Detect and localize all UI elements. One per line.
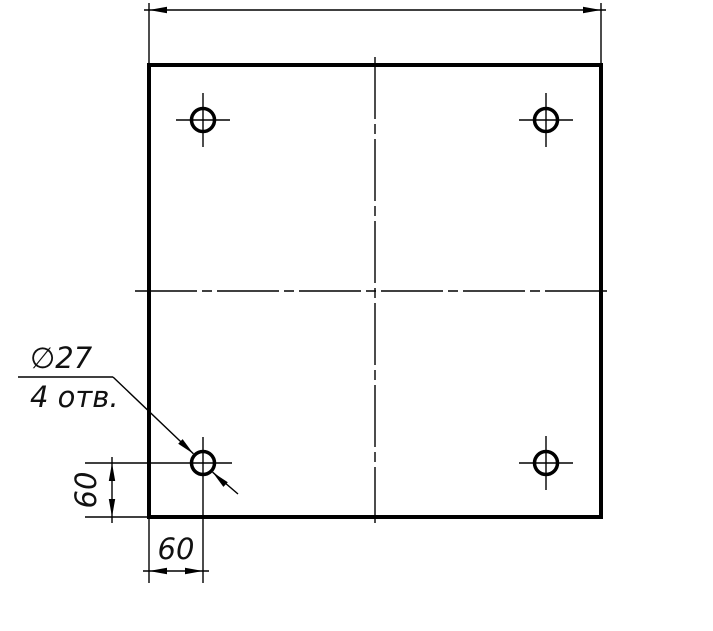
dimension-value-horizontal: 60 bbox=[158, 532, 195, 566]
technical-drawing: 60 60 ∅27 4 отв. bbox=[0, 0, 713, 631]
arrowhead-left-icon bbox=[149, 568, 167, 574]
arrowhead-right-icon bbox=[185, 568, 203, 574]
hole-count-label: 4 отв. bbox=[30, 380, 119, 414]
dimension-hole-offset-horizontal: 60 bbox=[143, 519, 209, 583]
leader-hole-callout: ∅27 4 отв. bbox=[18, 341, 238, 494]
hole-top-left bbox=[176, 93, 230, 147]
dimension-hole-offset-vertical: 60 bbox=[69, 457, 148, 523]
dimension-value-vertical: 60 bbox=[69, 472, 103, 509]
hole-bottom-right bbox=[519, 436, 573, 490]
arrowhead-down-icon bbox=[109, 499, 115, 517]
hole-diameter-label: ∅27 bbox=[30, 341, 93, 375]
drawing-canvas: 60 60 ∅27 4 отв. bbox=[0, 0, 713, 631]
dimension-overall-width bbox=[144, 3, 606, 63]
arrowhead-opposite-icon bbox=[213, 472, 228, 487]
arrowhead-left-icon bbox=[149, 7, 167, 13]
arrowhead-up-icon bbox=[109, 463, 115, 481]
arrowhead-right-icon bbox=[583, 7, 601, 13]
hole-top-right bbox=[519, 93, 573, 147]
